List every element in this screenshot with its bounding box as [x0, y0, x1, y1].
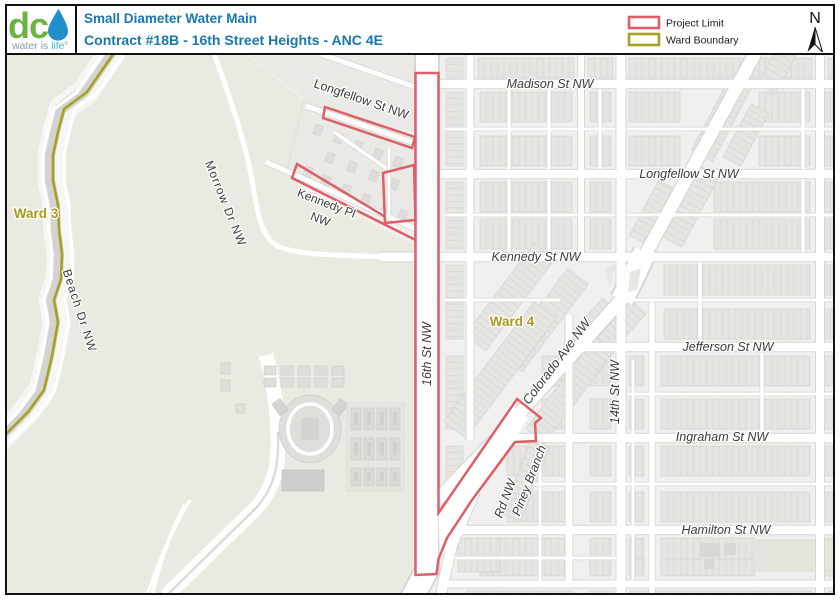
svg-text:Kennedy St NW: Kennedy St NW: [492, 250, 582, 264]
svg-text:Ingraham St NW: Ingraham St NW: [676, 430, 770, 444]
svg-text:N: N: [809, 10, 821, 27]
svg-text:Contract #18B - 16th Street He: Contract #18B - 16th Street Heights - AN…: [84, 33, 383, 48]
svg-text:Small Diameter Water Main: Small Diameter Water Main: [84, 11, 257, 26]
svg-text:Ward Boundary: Ward Boundary: [666, 35, 739, 47]
svg-text:Ward 3: Ward 3: [14, 206, 59, 221]
svg-text:Longfellow St NW: Longfellow St NW: [639, 167, 740, 181]
svg-text:14th St NW: 14th St NW: [608, 359, 622, 424]
svg-text:Jefferson St NW: Jefferson St NW: [682, 340, 775, 354]
svg-text:Madison St NW: Madison St NW: [507, 77, 595, 91]
svg-text:16th St NW: 16th St NW: [420, 321, 434, 386]
svg-text:water is life®: water is life®: [11, 40, 69, 52]
svg-text:Ward 4: Ward 4: [490, 314, 535, 329]
svg-text:Project Limit: Project Limit: [666, 18, 724, 30]
svg-text:Hamilton St NW: Hamilton St NW: [682, 523, 772, 537]
